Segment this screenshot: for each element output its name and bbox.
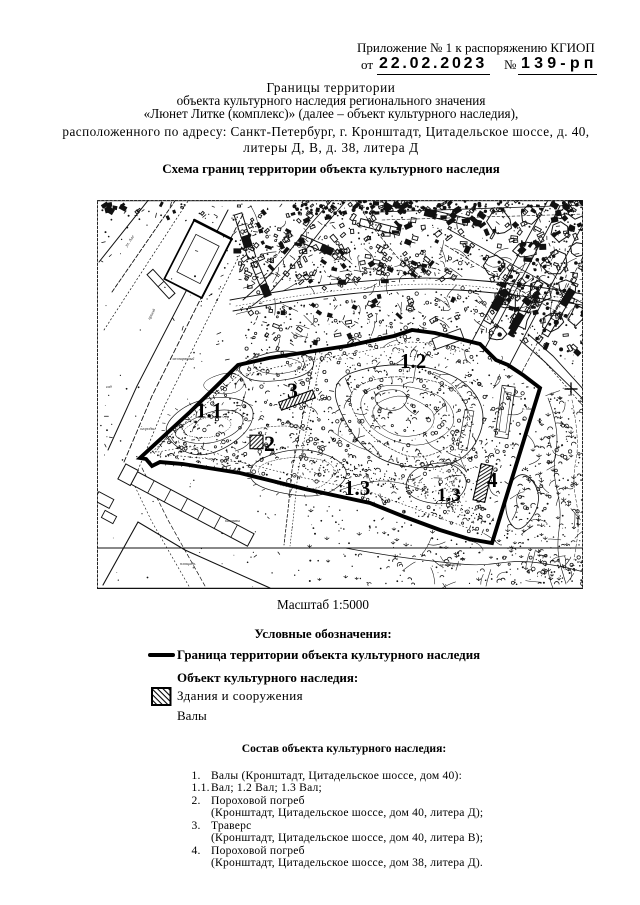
svg-text:мелкий ручей: мелкий ручей <box>439 562 461 567</box>
svg-text:ул. Але: ул. Але <box>123 234 135 248</box>
svg-text:лесопарковый: лесопарковый <box>171 356 194 361</box>
svg-text:огороды: огороды <box>140 426 155 431</box>
svg-text:казармы: казармы <box>225 518 240 523</box>
svg-text:1.2: 1.2 <box>400 349 426 373</box>
svg-text:1.1: 1.1 <box>196 399 222 423</box>
svg-text:проезд: проезд <box>146 308 156 321</box>
svg-text:1.3: 1.3 <box>437 485 461 506</box>
svg-text:сад: сад <box>106 384 112 389</box>
svg-text:3: 3 <box>287 378 298 403</box>
svg-text:4: 4 <box>487 468 498 492</box>
svg-text:1.3: 1.3 <box>344 476 370 500</box>
svg-text:площадь: площадь <box>180 561 196 566</box>
svg-text:2: 2 <box>264 431 275 456</box>
